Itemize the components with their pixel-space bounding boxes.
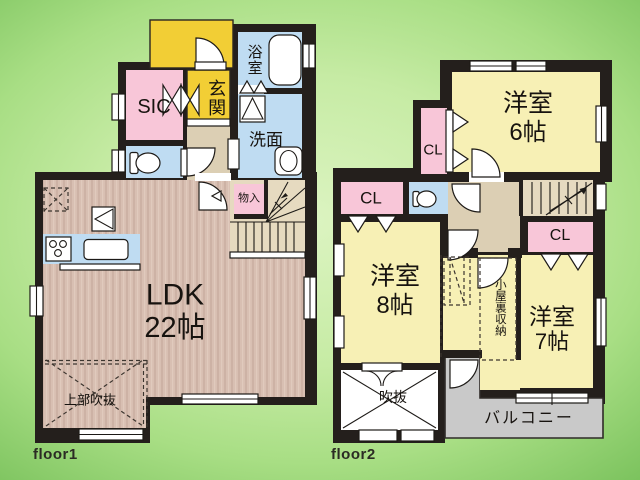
- floor-plan-image: LDK 22帖 SIC 玄関 浴室 洗面 物入 上部吹抜 洋室 6帖 洋室 8帖…: [0, 0, 640, 480]
- label-sic: SIC: [137, 97, 170, 117]
- label-balcony: バルコニー: [484, 411, 574, 427]
- label-closet-a: CL: [423, 142, 442, 157]
- label-floor2: floor2: [331, 446, 376, 463]
- label-washroom: 洗面: [249, 131, 283, 148]
- label-open-ceiling: 上部吹抜: [64, 393, 116, 406]
- label-storage: 物入: [238, 193, 260, 204]
- kitchen-sink-icon: [84, 240, 128, 260]
- toilet-icon: [413, 191, 436, 207]
- sink-icon: [275, 147, 302, 175]
- label-bedroom6: 洋室: [503, 91, 553, 117]
- label-closet-c: CL: [550, 228, 570, 244]
- label-bedroom8-size: 8帖: [376, 294, 413, 318]
- refrigerator-icon: [92, 207, 115, 231]
- label-ldk: LDK: [146, 281, 204, 312]
- label-void: 吹抜: [379, 390, 407, 404]
- toilet-icon: [130, 153, 160, 174]
- label-ldk-size: 22帖: [144, 314, 205, 344]
- label-floor1: floor1: [33, 446, 78, 463]
- label-bedroom7: 洋室: [529, 305, 575, 328]
- stove-icon: [46, 237, 71, 261]
- label-bedroom6-size: 6帖: [509, 121, 546, 145]
- label-attic-storage: 小屋裏収納: [493, 278, 505, 336]
- floor1-plan: [30, 20, 317, 443]
- label-genkan: 玄関: [207, 79, 225, 117]
- bathtub-icon: [269, 35, 301, 85]
- stairs-floor2: [523, 180, 593, 216]
- label-bath: 浴室: [246, 44, 261, 76]
- label-bedroom8: 洋室: [370, 264, 420, 290]
- washing-machine-icon: [240, 96, 265, 122]
- label-bedroom7-size: 7帖: [535, 331, 569, 353]
- floor2-plan: [333, 60, 612, 443]
- floor-plan-drawing: [0, 0, 640, 480]
- label-closet-b: CL: [360, 189, 382, 206]
